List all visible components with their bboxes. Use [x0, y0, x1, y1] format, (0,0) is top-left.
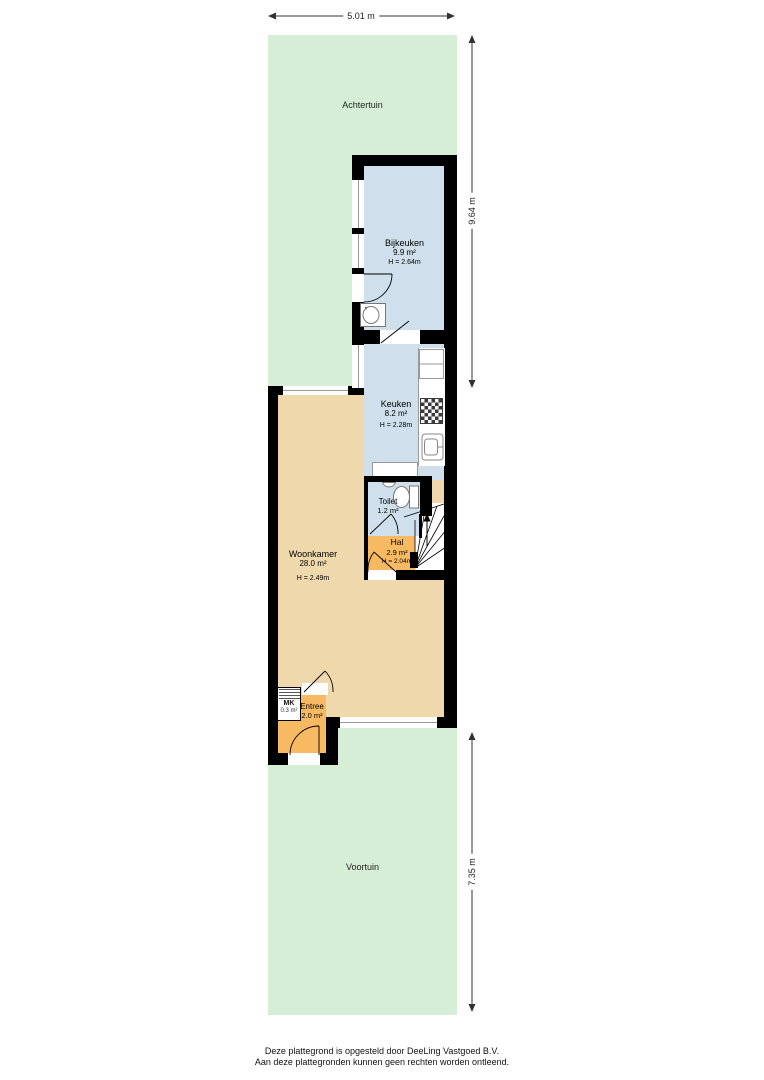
footer-line-2: Aan deze plattegronden kunnen geen recht… — [0, 1057, 764, 1068]
window-woonkamer-top — [283, 386, 348, 395]
dimension-width-label: 5.01 m — [343, 11, 379, 21]
wall-toilet-stairs-thin — [419, 514, 422, 538]
toilet-label: Toilet 1.2 m² — [368, 497, 408, 515]
door-gap-entree-woonkamer — [302, 683, 328, 695]
bijkeuken-name: Bijkeuken — [364, 238, 445, 248]
window-bijkeuken-1 — [352, 180, 364, 228]
door-gap-bijkeuken-keuken — [380, 330, 420, 344]
meter-closet-grille — [279, 689, 300, 700]
bijkeuken-ceiling: H = 2.64m — [364, 258, 445, 268]
front-garden: Voortuin — [268, 728, 457, 1015]
hal-ceiling: H = 2.04m — [369, 557, 425, 567]
dimension-back-garden-label: 9.64 m — [467, 193, 477, 229]
back-garden-label: Achtertuin — [268, 100, 457, 110]
woonkamer-name: Woonkamer — [253, 549, 373, 559]
door-gap-bijkeuken-garden — [352, 274, 364, 302]
window-woonkamer-bottom — [340, 717, 437, 728]
toilet-name: Toilet — [368, 497, 408, 506]
footer-line-1: Deze plattegrond is opgesteld door DeeLi… — [0, 1046, 764, 1057]
window-bijkeuken-2 — [352, 234, 364, 268]
entree-label: Entree 2.0 m² — [282, 702, 342, 720]
woonkamer-label: Woonkamer 28.0 m² H = 2.49m — [253, 549, 373, 584]
kitchen-counter-bottom — [372, 462, 418, 477]
toilet-area: 1.2 m² — [368, 506, 408, 515]
woonkamer-ceiling: H = 2.49m — [253, 574, 373, 584]
hal-name: Hal — [369, 538, 425, 548]
keuken-label: Keuken 8.2 m² H = 2.28m — [364, 399, 428, 431]
hal-label: Hal 2.9 m² H = 2.04m — [369, 538, 425, 567]
keuken-ceiling: H = 2.28m — [364, 421, 428, 431]
woonkamer-area: 28.0 m² — [253, 559, 373, 569]
entree-area: 2.0 m² — [282, 711, 342, 720]
bijkeuken-label: Bijkeuken 9.9 m² H = 2.64m — [364, 238, 445, 268]
wall-toilet-stairs — [420, 476, 432, 516]
footer-disclaimer: Deze plattegrond is opgesteld door DeeLi… — [0, 1046, 764, 1068]
front-garden-label: Voortuin — [268, 862, 457, 872]
keuken-name: Keuken — [364, 399, 428, 409]
door-gap-front-door — [288, 753, 320, 765]
keuken-area: 8.2 m² — [364, 409, 428, 419]
window-keuken — [352, 345, 364, 388]
bijkeuken-area: 9.9 m² — [364, 248, 445, 258]
dimension-front-garden-label: 7.35 m — [467, 854, 477, 890]
hal-area: 2.9 m² — [369, 548, 425, 558]
entree-name: Entree — [282, 702, 342, 711]
floorplan-canvas: Achtertuin Voortuin MK 0.3 m² — [0, 0, 764, 1080]
